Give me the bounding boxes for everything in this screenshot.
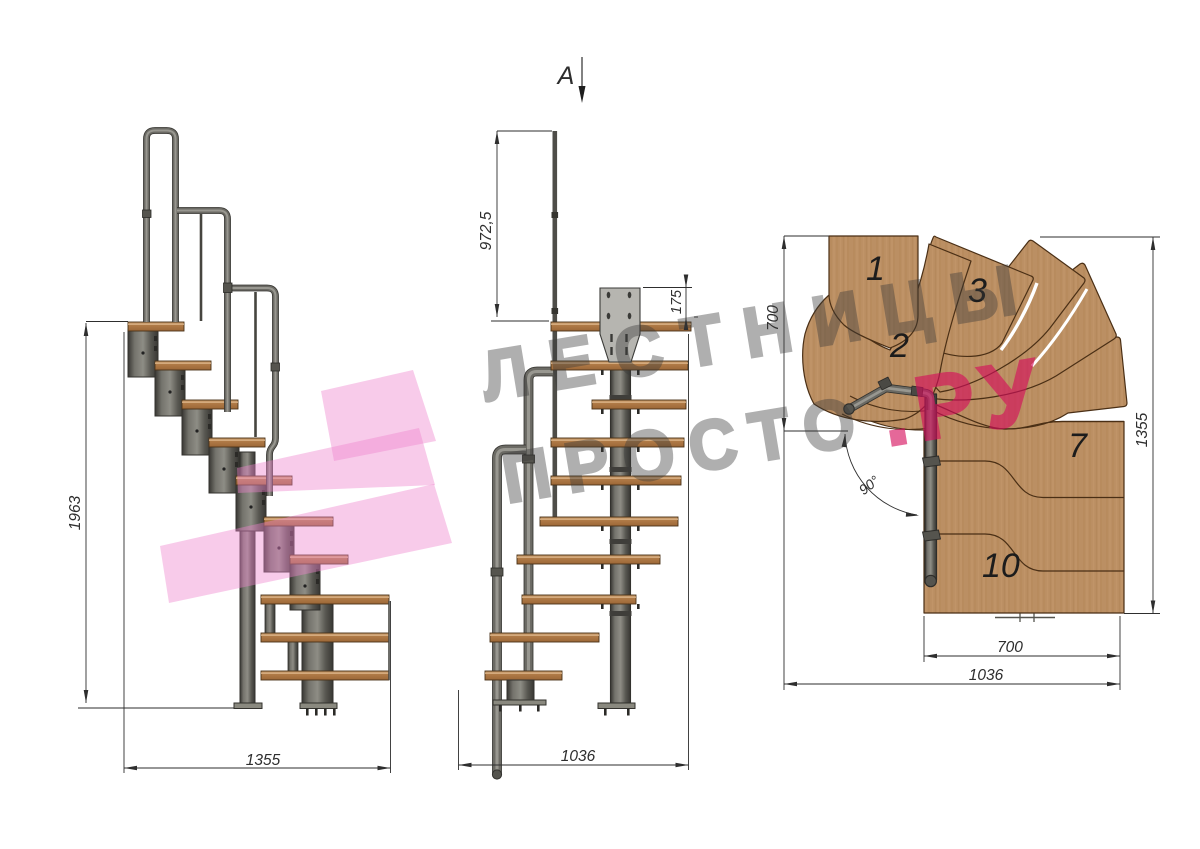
svg-text:A: A (556, 62, 575, 90)
svg-text:1036: 1036 (561, 748, 596, 765)
svg-text:1355: 1355 (1134, 412, 1151, 447)
svg-text:1036: 1036 (969, 667, 1004, 684)
svg-text:1355: 1355 (246, 752, 281, 769)
svg-text:1963: 1963 (67, 495, 84, 530)
svg-text:700: 700 (997, 639, 1023, 656)
svg-text:7: 7 (1068, 427, 1088, 465)
svg-text:972,5: 972,5 (478, 211, 495, 250)
svg-text:10: 10 (982, 547, 1020, 585)
